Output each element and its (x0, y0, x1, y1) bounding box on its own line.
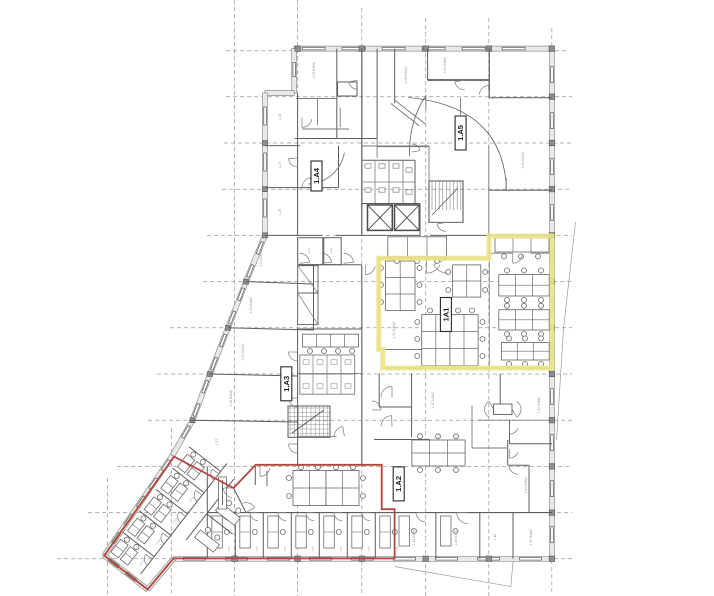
svg-text:1.05 KANC: 1.05 KANC (404, 66, 408, 84)
svg-text:1.51: 1.51 (311, 546, 315, 552)
svg-text:1.A2: 1.A2 (394, 476, 403, 492)
svg-text:1.44 KANC: 1.44 KANC (412, 528, 416, 546)
svg-text:1.A4: 1.A4 (312, 167, 321, 184)
svg-text:1.51: 1.51 (339, 546, 343, 552)
svg-text:1.21: 1.21 (307, 248, 311, 254)
svg-text:1.51: 1.51 (367, 546, 371, 552)
svg-text:1.03 KANC: 1.03 KANC (312, 61, 316, 79)
svg-text:1.A3: 1.A3 (282, 376, 291, 392)
svg-text:1.31 KANC: 1.31 KANC (392, 321, 396, 339)
svg-text:1.26 KANC: 1.26 KANC (229, 389, 233, 407)
svg-text:1A1: 1A1 (441, 308, 450, 322)
svg-text:1.27: 1.27 (215, 439, 219, 446)
svg-text:1.08 KANC: 1.08 KANC (521, 151, 525, 169)
svg-text:1.46: 1.46 (493, 534, 497, 541)
svg-text:1.41 KANC: 1.41 KANC (524, 476, 528, 494)
svg-text:1.51: 1.51 (255, 546, 259, 552)
svg-text:1.18: 1.18 (278, 114, 282, 121)
svg-text:1.17: 1.17 (278, 162, 282, 169)
svg-text:1.45 KANC: 1.45 KANC (454, 528, 458, 546)
svg-text:1.16: 1.16 (278, 209, 282, 216)
svg-text:1.25 KANC: 1.25 KANC (241, 343, 245, 361)
svg-text:1.51: 1.51 (283, 546, 287, 552)
svg-text:1.23 KANC: 1.23 KANC (259, 249, 263, 267)
svg-text:1.06 KANC: 1.06 KANC (443, 56, 447, 74)
svg-text:1.32 KANC: 1.32 KANC (431, 391, 435, 409)
svg-text:1.24 KANC: 1.24 KANC (249, 296, 253, 314)
svg-text:1.51: 1.51 (227, 546, 231, 552)
svg-text:1.22: 1.22 (329, 248, 333, 254)
svg-text:1.A5: 1.A5 (456, 125, 465, 141)
svg-text:1.47 KANC: 1.47 KANC (529, 528, 533, 546)
svg-text:1.40 KANC: 1.40 KANC (537, 396, 541, 414)
